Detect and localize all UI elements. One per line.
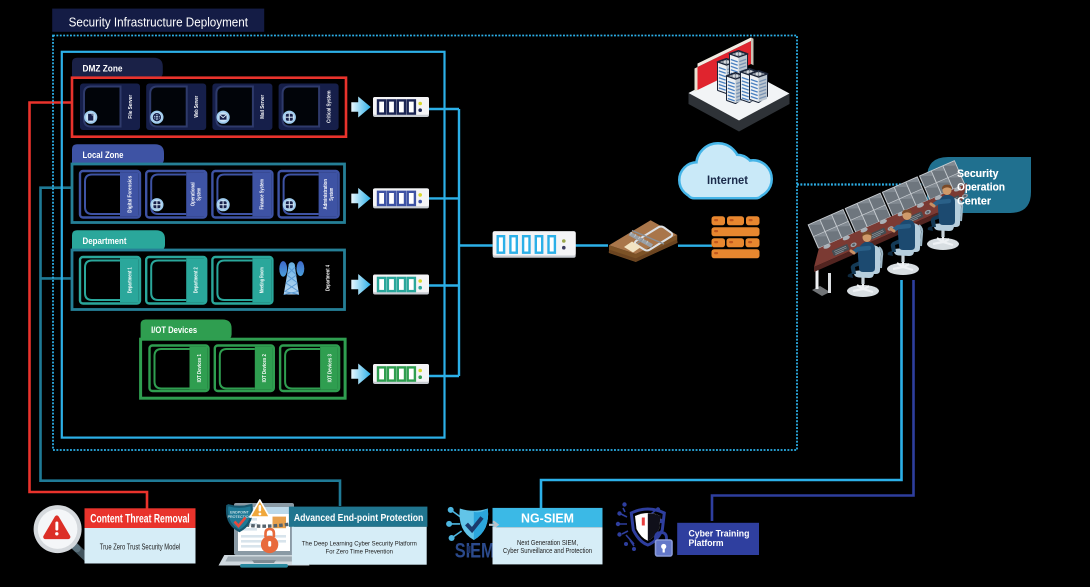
svg-text:Finance System: Finance System <box>260 179 266 210</box>
svg-text:Web Server: Web Server <box>194 96 200 118</box>
svg-text:Content Threat Removal: Content Threat Removal <box>90 512 189 526</box>
svg-text:Department 2: Department 2 <box>193 267 199 293</box>
svg-text:Meeting Room: Meeting Room <box>260 267 266 294</box>
svg-text:IOT Devices 2: IOT Devices 2 <box>262 354 268 382</box>
svg-text:Department: Department <box>83 236 128 247</box>
svg-text:IOT Devices 3: IOT Devices 3 <box>327 354 333 382</box>
svg-text:SIEM: SIEM <box>455 540 495 563</box>
svg-text:NG-SIEM: NG-SIEM <box>521 511 574 525</box>
svg-text:Digital Forensics: Digital Forensics <box>127 176 133 213</box>
svg-text:Security: Security <box>957 168 998 180</box>
svg-text:Department 4: Department 4 <box>325 265 331 291</box>
svg-text:Next Generation SIEM,: Next Generation SIEM, <box>517 540 578 547</box>
svg-text:DMZ Zone: DMZ Zone <box>83 64 123 75</box>
svg-text:Critical System: Critical System <box>326 90 332 123</box>
svg-text:The Deep Learning Cyber Securi: The Deep Learning Cyber Security Platfor… <box>302 541 417 548</box>
svg-text:IOT Devices 1: IOT Devices 1 <box>197 354 203 382</box>
svg-text:True Zero Trust Security Model: True Zero Trust Security Model <box>100 543 181 552</box>
svg-text:Local Zone: Local Zone <box>83 150 124 161</box>
svg-text:Administration: Administration <box>323 179 329 209</box>
svg-text:I/OT Devices: I/OT Devices <box>151 325 197 336</box>
svg-text:File Server: File Server <box>128 95 134 119</box>
svg-text:Internet: Internet <box>707 175 748 187</box>
svg-text:Center: Center <box>957 195 992 207</box>
svg-text:For Zero Time Prevention: For Zero Time Prevention <box>326 548 394 555</box>
svg-text:Department 1: Department 1 <box>127 267 133 293</box>
svg-text:Platform: Platform <box>689 538 724 548</box>
svg-text:Operation: Operation <box>957 182 1005 194</box>
svg-text:Mail Server: Mail Server <box>260 95 266 119</box>
svg-text:PROTECTION: PROTECTION <box>228 515 252 519</box>
svg-text:Cyber Surveillance and Protect: Cyber Surveillance and Protection <box>503 548 592 555</box>
svg-text:System: System <box>197 187 203 201</box>
svg-text:Cyber Training: Cyber Training <box>689 528 750 538</box>
svg-text:System: System <box>329 187 335 201</box>
svg-text:ENDPOINT: ENDPOINT <box>230 511 249 515</box>
svg-text:Security Infrastructure Deploy: Security Infrastructure Deployment <box>69 15 249 30</box>
svg-text:Operational: Operational <box>190 182 196 206</box>
svg-text:Advanced End-point Protection: Advanced End-point Protection <box>294 513 424 524</box>
